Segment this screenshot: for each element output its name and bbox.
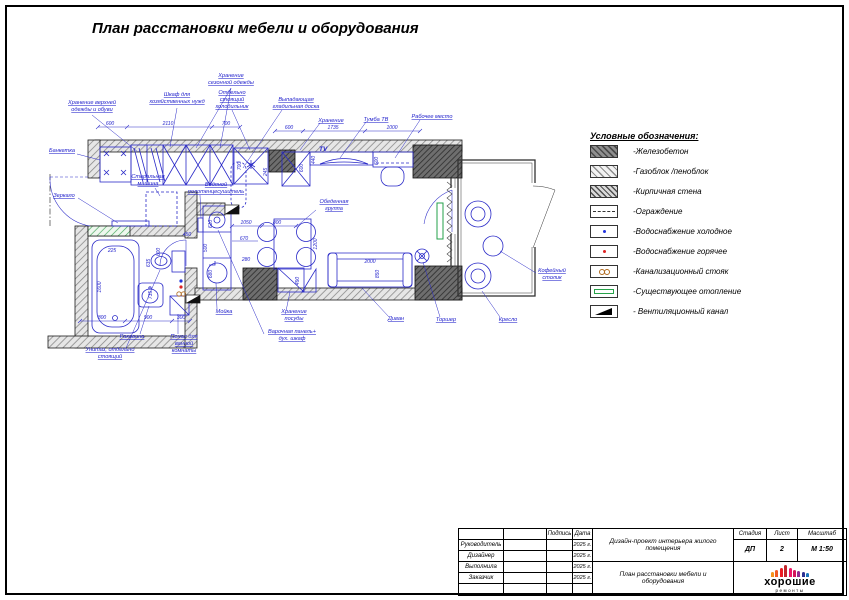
stage-header: Стадия xyxy=(734,529,767,540)
plan-label: Отдельностоящийхолодильник xyxy=(214,90,248,110)
logo-person-icon xyxy=(784,565,787,577)
cold-water-dot xyxy=(179,279,182,282)
role-label: Руководитель xyxy=(459,540,504,551)
plan-label: Шкаф дляхозяйственных нужд xyxy=(148,92,204,105)
dimension-value: 1000 xyxy=(386,125,397,131)
plan-label: Хранениесезонной одежды xyxy=(208,73,254,86)
page-title: План расстановки мебели и оборудования xyxy=(92,20,419,37)
dimension-value: 700 xyxy=(222,121,231,127)
role-label: Выполнила xyxy=(459,562,504,573)
plan-label: Торшер xyxy=(436,317,456,323)
sewer-riser-swatch xyxy=(590,265,618,278)
sheet-header: Лист xyxy=(767,529,798,540)
role-label: Заказчик xyxy=(459,573,504,584)
dimension-value: 280 xyxy=(241,257,251,263)
date-value: 2025 г. xyxy=(573,562,593,573)
heating-swatch xyxy=(590,285,618,298)
date-header: Дата xyxy=(573,529,593,540)
legend-item: -Канализационный стояк xyxy=(590,261,840,281)
plan-label: Водянойполотенцесушитель xyxy=(188,181,244,195)
dimension-value: 450 xyxy=(183,232,192,238)
legend-item: -Кирпичная стена xyxy=(590,181,840,201)
dimension-value: 1735 xyxy=(327,125,338,131)
company-logo: хорошие ремонты xyxy=(734,562,846,595)
sewer-riser-icon xyxy=(177,292,181,296)
podpis-header: Подпись xyxy=(547,529,573,540)
dimension-value: 440 xyxy=(311,156,317,165)
drawing-sheet: План расстановки мебели и оборудования xyxy=(0,0,849,600)
stage-value: ДП xyxy=(734,540,767,562)
scale-value: М 1:50 xyxy=(798,540,846,562)
plan-label: Хранение xyxy=(317,118,343,124)
dimension-value: 600 xyxy=(299,164,305,173)
floor-lamp xyxy=(415,249,429,263)
washing-machine xyxy=(146,192,177,226)
logo-subname: ремонты xyxy=(776,588,805,593)
plan-label: Мойка xyxy=(216,308,233,315)
entrance-door xyxy=(50,174,90,226)
plan-label: Рабочее место xyxy=(412,114,453,120)
snowflake-icon xyxy=(247,160,255,169)
dimension-value: 670 xyxy=(240,236,249,242)
label-leader-line xyxy=(155,188,160,196)
legend-item: -Железобетон xyxy=(590,141,840,161)
legend-item: - Вентиляционный канал xyxy=(590,301,840,321)
title-block: Руководитель Дизайнер Выполнила Заказчик… xyxy=(458,528,847,596)
tv-icon xyxy=(320,159,368,165)
legend-item: -Водоснабжение горячее xyxy=(590,241,840,261)
document-title: План расстановки мебели и оборудования xyxy=(593,562,734,595)
dimension-value: 600 xyxy=(374,157,380,166)
plan-label: Тумба ТВ xyxy=(364,117,389,123)
logo-name: хорошие xyxy=(764,577,816,588)
signature-cell xyxy=(504,562,547,573)
signature-cell xyxy=(504,540,547,551)
gasblock-wall xyxy=(88,226,130,236)
hot-water-dot xyxy=(179,285,182,288)
vent-channel-icon xyxy=(186,295,200,303)
legend-item: -Существующее отопление xyxy=(590,281,840,301)
radiator xyxy=(437,203,443,239)
armchair xyxy=(465,263,491,289)
plan-label: Кресло xyxy=(499,317,518,323)
signature-cell xyxy=(504,573,547,584)
coffee-table xyxy=(483,236,503,256)
floor-plan: БанкеткаХранение верхнейодежды и обувиШк… xyxy=(30,60,580,390)
armchair xyxy=(465,201,491,227)
dimension-value: 1600 xyxy=(97,281,103,292)
dimension-value: 2000 xyxy=(363,259,375,265)
dimension-value: 735 xyxy=(148,291,154,300)
vent-channel-icon xyxy=(225,205,239,214)
hot-water-swatch xyxy=(590,245,618,258)
dimension-value: 1050 xyxy=(240,220,251,226)
cold-water-swatch xyxy=(590,225,618,238)
plan-label: Хранениепосуды xyxy=(280,309,306,322)
dimension-value: 600 xyxy=(156,248,162,257)
legend-item: -Водоснабжение холодное xyxy=(590,221,840,241)
legend: Условные обозначения: -Железобетон -Газо… xyxy=(590,131,840,321)
vent-channel-swatch xyxy=(590,305,618,318)
window-wall xyxy=(424,178,457,266)
fence-line-swatch xyxy=(590,205,618,218)
dimension-value: 600 xyxy=(285,125,294,131)
dimension-value: 245 xyxy=(263,168,269,178)
date-value: 2025 г. xyxy=(573,573,593,584)
label-leader-line xyxy=(482,291,500,317)
plan-label: Раковина xyxy=(120,334,145,340)
dimension-value: 1200 xyxy=(313,238,319,249)
plan-label: Кофейныйстолик xyxy=(538,267,566,281)
plan-label: Обеденнаягруппа xyxy=(319,199,348,212)
date-value: 2025 г. xyxy=(573,551,593,562)
tv-cabinet xyxy=(310,152,373,165)
plan-labels: БанкеткаХранение верхнейодежды и обувиШк… xyxy=(49,73,566,360)
label-leader-line xyxy=(500,251,536,273)
plan-label: Варочная панель+дух. шкаф xyxy=(268,329,317,342)
plan-label: Унитаз, отдельностоящий xyxy=(84,347,134,360)
mirror xyxy=(112,221,149,226)
dimension-value: 500 xyxy=(203,244,209,253)
plan-label: TV xyxy=(319,146,328,153)
balcony xyxy=(458,160,555,296)
brick-hatch-swatch xyxy=(590,185,618,198)
dimension-value: 2110 xyxy=(162,121,174,127)
dimension-value: 680 xyxy=(208,270,214,279)
plan-label: Банкетка xyxy=(49,148,75,154)
dimension-value: 900 xyxy=(144,315,153,321)
dimension-value: 300 xyxy=(177,315,186,321)
legend-title: Условные обозначения: xyxy=(590,131,840,141)
plan-label: Хранение верхнейодежды и обуви xyxy=(67,99,116,113)
dimension-value: 800 xyxy=(98,315,107,321)
legend-item: -Ограждение xyxy=(590,201,840,221)
legend-item: -Газоблок /пеноблок xyxy=(590,161,840,181)
concrete-hatch-swatch xyxy=(590,145,618,158)
dimension-value: 635 xyxy=(146,259,152,268)
dimension-value: 800 xyxy=(273,220,282,226)
drain xyxy=(113,316,118,321)
scale-header: Масштаб xyxy=(798,529,846,540)
desk-chair xyxy=(381,167,404,186)
label-leader-line xyxy=(78,198,118,223)
gasblock-hatch-swatch xyxy=(590,165,618,178)
sheet-number: 2 xyxy=(767,540,798,562)
date-value: 2025 г. xyxy=(573,540,593,551)
role-label: Дизайнер xyxy=(459,551,504,562)
dimension-value: 610 xyxy=(208,220,214,229)
plan-label: Выпадающаягладильная доска xyxy=(273,97,320,110)
signature-cell xyxy=(504,551,547,562)
dimension-value: 490 xyxy=(295,277,301,286)
towel-rail xyxy=(198,218,203,232)
dimension-value: 850 xyxy=(375,270,381,279)
dimension-value: 600 xyxy=(106,121,115,127)
dimension-value: 225 xyxy=(107,248,117,254)
plan-label: Зеркало xyxy=(53,193,75,199)
logo-figures xyxy=(770,565,809,577)
project-title: Дизайн-проект интерьера жилого помещения xyxy=(593,529,734,562)
dimension-value: 700 xyxy=(237,162,243,171)
label-leader-line xyxy=(296,210,316,227)
dining-group xyxy=(258,219,316,269)
plan-label: Диван xyxy=(387,316,404,322)
